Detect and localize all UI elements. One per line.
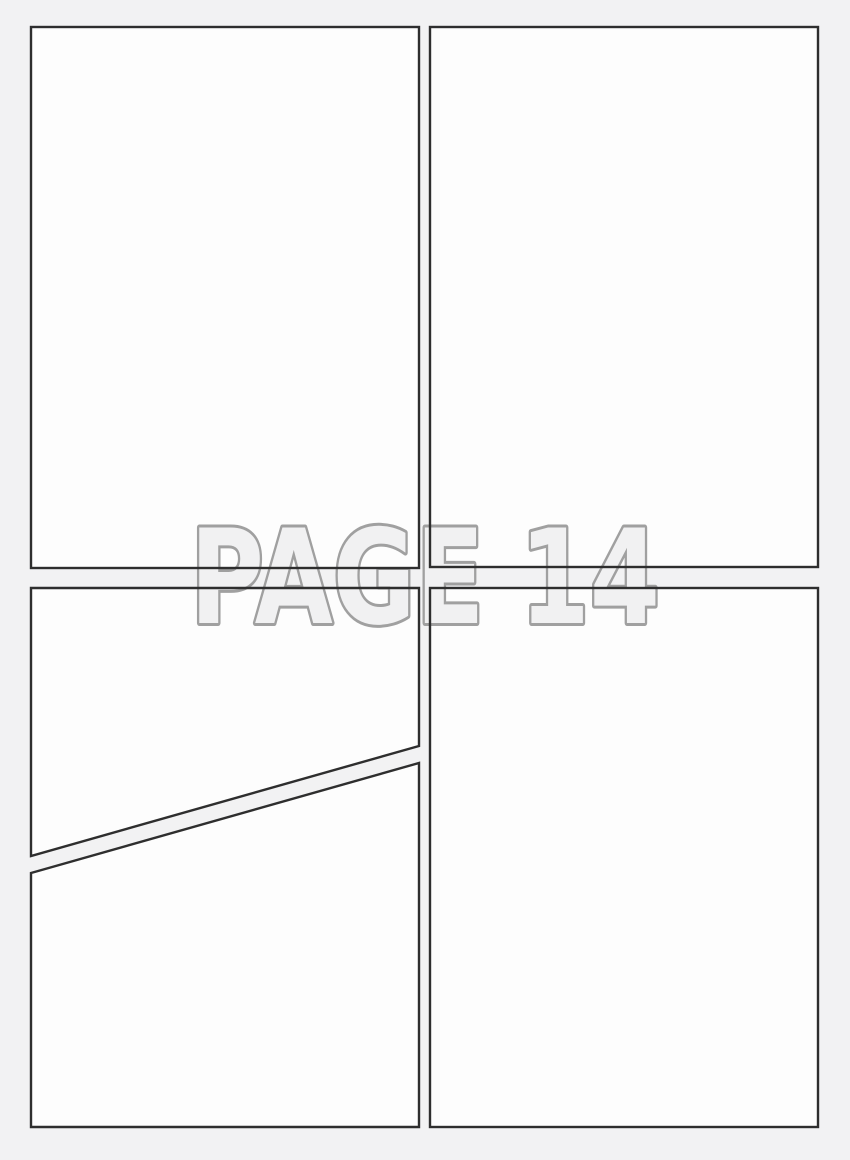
- panel-top-left-fill: [31, 27, 419, 568]
- page-number-watermark: PAGE 14: [190, 501, 660, 654]
- panel-bottom-right-fill: [430, 588, 818, 1127]
- page-canvas: PAGE 14: [0, 0, 850, 1160]
- comic-page-template: PAGE 14: [0, 0, 850, 1160]
- panel-top-right-fill: [430, 27, 818, 567]
